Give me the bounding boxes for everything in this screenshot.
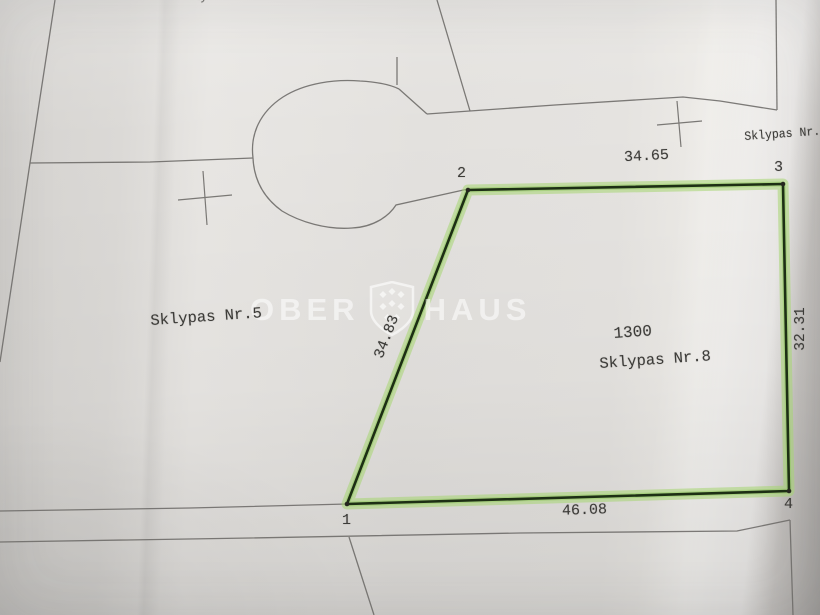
cul-de-sac-outline-top <box>252 81 399 158</box>
cross-arm <box>677 101 681 147</box>
watermark-word-ober: OBER <box>250 294 360 325</box>
road-north-edge <box>427 97 777 114</box>
plot-8-outline <box>345 182 792 507</box>
road-funnel-line <box>399 89 427 114</box>
corner-label-1: 1 <box>342 513 351 528</box>
corner-point-2 <box>466 188 471 193</box>
corner-point-3 <box>781 182 786 187</box>
survey-cross-icon <box>657 101 702 147</box>
corner-point-1 <box>345 502 350 507</box>
south-parcel-line-left <box>349 537 374 615</box>
plot-8-highlight <box>347 184 789 504</box>
road-south-edge-2 <box>0 520 790 542</box>
north-parcel-divider-right <box>776 0 777 110</box>
dimension-top: 34.65 <box>624 148 670 165</box>
corner-label-3: 3 <box>774 160 783 175</box>
plot-area-label: 1300 <box>613 323 652 342</box>
corner-point-4 <box>787 489 792 494</box>
boundary-line-west <box>30 158 253 163</box>
cadastral-plan-photo: OBER HAUS Skly Sklypas Nr. 34.65 2 3 Skl… <box>0 0 820 615</box>
cul-de-sac-outline-bottom <box>253 158 468 228</box>
corner-label-2: 2 <box>457 166 466 181</box>
road-south-edge-1 <box>0 504 347 511</box>
dimension-right: 32.31 <box>794 307 809 351</box>
survey-cross-icon <box>178 171 232 225</box>
south-parcel-line-right <box>790 520 793 615</box>
dimension-bottom: 46.08 <box>562 502 608 519</box>
corner-label-4: 4 <box>784 497 793 512</box>
watermark-word-haus: HAUS <box>424 294 532 325</box>
boundary-line-left <box>0 0 55 362</box>
north-parcel-divider <box>437 0 470 111</box>
